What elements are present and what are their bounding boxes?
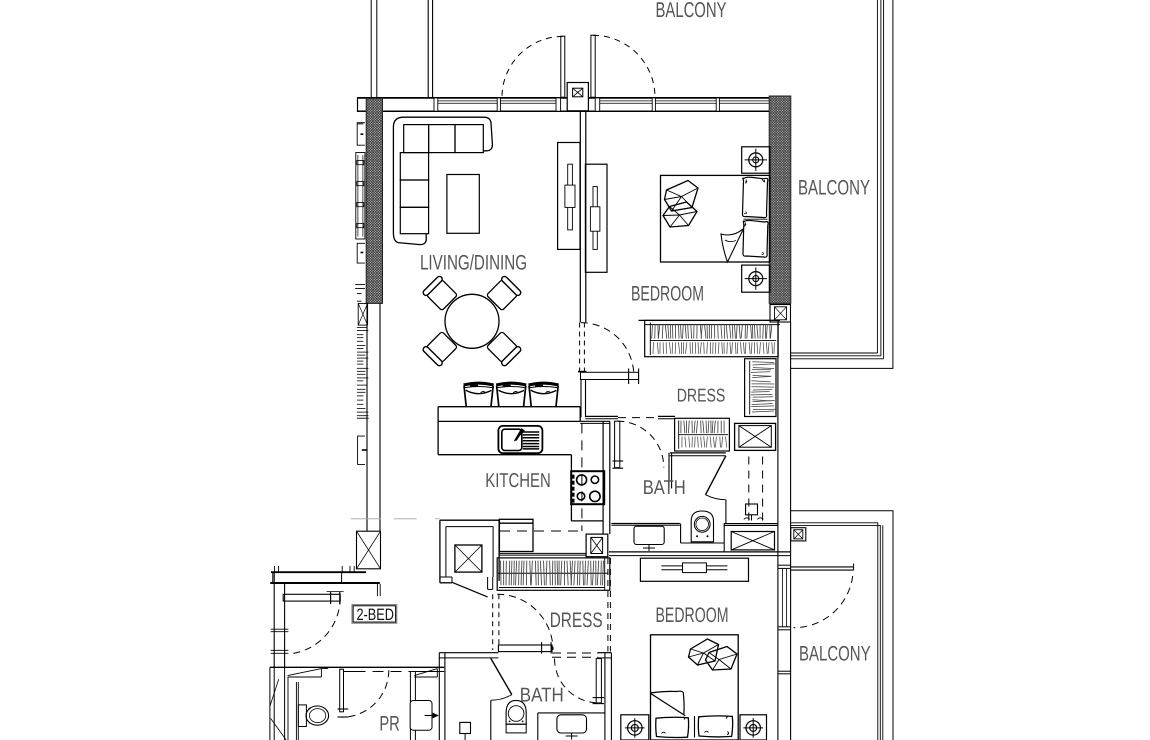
svg-text:BATH: BATH — [520, 685, 564, 707]
svg-text:DRESS: DRESS — [677, 385, 726, 406]
svg-text:KITCHEN: KITCHEN — [485, 470, 551, 492]
svg-text:PR: PR — [379, 712, 400, 735]
svg-text:BALCONY: BALCONY — [799, 642, 871, 665]
svg-text:2-BED: 2-BED — [356, 606, 394, 624]
svg-text:BEDROOM: BEDROOM — [656, 604, 729, 627]
svg-text:BALCONY: BALCONY — [798, 176, 870, 199]
svg-text:LIVING/DINING: LIVING/DINING — [420, 252, 527, 275]
svg-text:DRESS: DRESS — [550, 609, 603, 632]
svg-text:BALCONY: BALCONY — [656, 0, 727, 22]
svg-text:BEDROOM: BEDROOM — [631, 283, 704, 306]
svg-text:BATH: BATH — [643, 477, 686, 499]
